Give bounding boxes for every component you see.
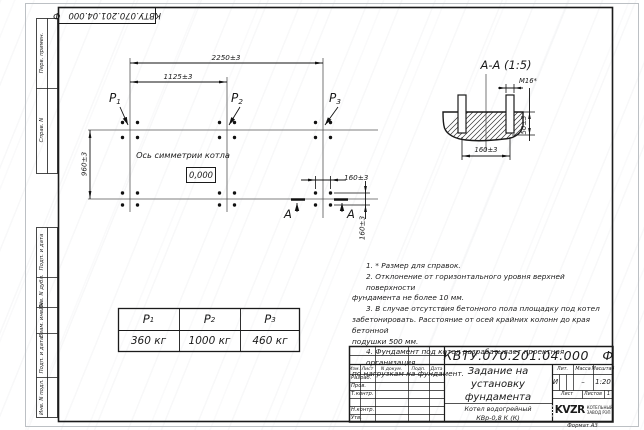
- col-data: Дата: [429, 364, 444, 374]
- dim-160-horizontal: 160±3: [344, 173, 368, 182]
- title-block-product-name: Котел водогрейный КВр-0,8 К (К): [444, 404, 552, 422]
- load-table-header-p3: Р3: [240, 308, 300, 330]
- load-label-p2: Р2: [231, 91, 243, 106]
- note-line: фундамента не более 10 мм.: [352, 293, 610, 304]
- margin-label-perv-primen: Перв. примен.: [39, 33, 45, 73]
- section-letter-left: А: [284, 207, 292, 221]
- dim-160-vertical: 160±3: [358, 216, 367, 240]
- title-block-doc-number: КВТУ.070.201.04.000 Ф: [444, 346, 613, 364]
- sheets-value: 1: [604, 390, 613, 398]
- load-table-value-p2: 1000 кг: [179, 330, 240, 352]
- sheet-label: Лист: [552, 390, 582, 398]
- scale-header: Масштаб: [593, 364, 613, 374]
- margin-label-vzam-inv: Взам. инв. N: [39, 302, 45, 337]
- section-letter-right: А: [347, 207, 355, 221]
- load-label-p3: Р3: [329, 91, 341, 106]
- sheets-label: Листов: [582, 390, 604, 398]
- format-label: Формат А3: [552, 422, 613, 430]
- logo-text: KVZR: [555, 404, 585, 416]
- load-table-value-p1: 360 кг: [118, 330, 179, 352]
- row-tkontr: Т.контр.: [351, 391, 375, 397]
- section-view-title: А-А (1:5): [466, 57, 546, 72]
- mass-header: Масса: [573, 364, 593, 374]
- row-nkontr: Н.контр.: [351, 407, 375, 413]
- col-izm: Изм.: [349, 364, 360, 374]
- title-block-drawing-title: Задание на установку фундамента: [444, 365, 552, 403]
- col-podp: Подп.: [408, 364, 429, 374]
- margin-label-podp-data-1: Подп. и дата: [39, 234, 45, 271]
- engineering-drawing-sheet: КВТУ.070.201.04.000 Ф Перв. примен. Спра…: [0, 0, 644, 430]
- corner-reference-number: КВТУ.070.201.04.000 Ф: [53, 10, 161, 20]
- note-line: 1. * Размер для справок.: [352, 261, 610, 272]
- elevation-mark: 0,000: [186, 167, 216, 183]
- row-prov: Пров.: [351, 383, 375, 389]
- margin-label-sprav-n: Справ. N: [39, 118, 45, 143]
- boiler-coil-icon: [552, 403, 553, 417]
- dim-2250: 2250±3: [196, 53, 256, 62]
- note-line: 2. Отклонение от горизонтального уровня …: [352, 272, 610, 294]
- margin-label-inv-podl: Инв. N подл.: [39, 379, 45, 415]
- load-label-p1: Р1: [109, 91, 121, 106]
- dim-160-section: 160±3: [462, 145, 510, 154]
- load-table-header-p2: Р2: [179, 308, 240, 330]
- dim-960: 960±3: [80, 152, 89, 176]
- logo-caption: КОТЕЛЬНЫЙ ЗАВОД РЭП: [587, 405, 613, 415]
- lit-header: Лит.: [552, 364, 573, 374]
- load-table-header-p1: Р1: [118, 308, 179, 330]
- manufacturer-logo: KVZR КОТЕЛЬНЫЙ ЗАВОД РЭП: [552, 398, 613, 422]
- scale-value: 1:20: [593, 374, 613, 390]
- margin-label-podp-data-2: Подп. и дата: [39, 337, 45, 374]
- dim-1125: 1125±3: [148, 72, 208, 81]
- lit-value: И: [552, 374, 559, 390]
- col-ndokum: N докум.: [375, 364, 408, 374]
- note-line: забетонировать. Расстояние от осей крайн…: [352, 315, 610, 337]
- corner-reference-stamp: КВТУ.070.201.04.000 Ф: [58, 7, 155, 23]
- bolt-thread-callout: M16*: [519, 77, 537, 85]
- col-list: Лист: [360, 364, 375, 374]
- mass-value: –: [573, 374, 593, 390]
- note-line: 3. В случае отсутствия бетонного пола пл…: [352, 304, 610, 315]
- dim-50: 50±3: [520, 116, 528, 135]
- axis-of-symmetry-label: Ось симметрии котла: [140, 149, 226, 160]
- row-utv: Утв.: [351, 415, 375, 421]
- load-table-value-p3: 460 кг: [240, 330, 300, 352]
- row-razrab: Разраб.: [351, 375, 375, 381]
